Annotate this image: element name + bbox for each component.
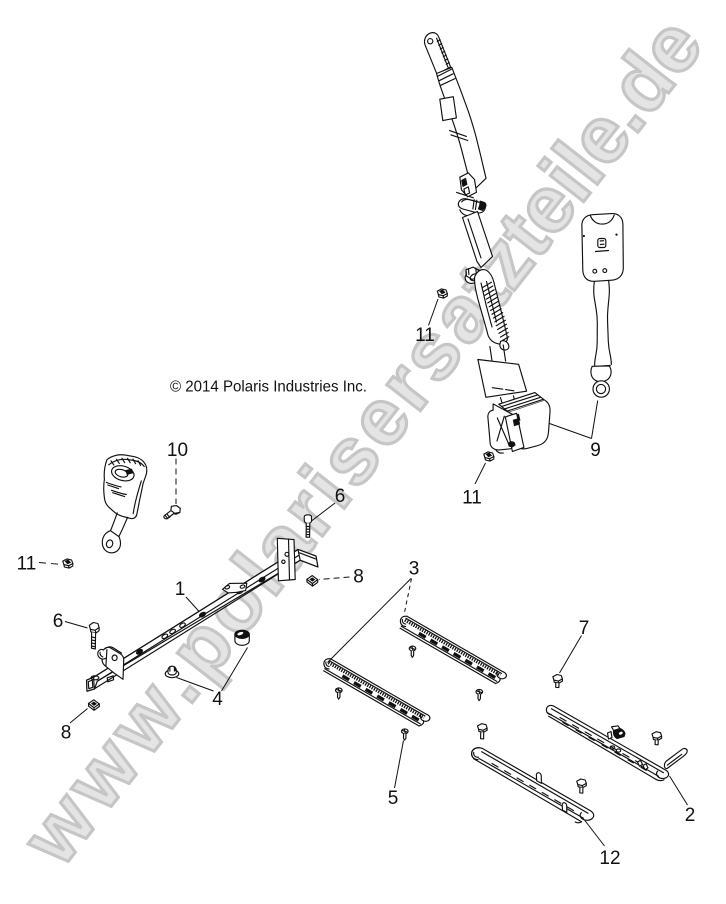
svg-text:5: 5 [388,788,399,809]
svg-text:6: 6 [335,486,346,507]
svg-text:12: 12 [599,848,620,869]
svg-text:8: 8 [353,567,364,588]
svg-text:8: 8 [61,723,72,744]
svg-text:11: 11 [17,554,37,575]
svg-text:3: 3 [409,559,420,580]
svg-text:© 2014 Polaris Industries Inc.: © 2014 Polaris Industries Inc. [170,379,367,396]
svg-text:11: 11 [462,488,482,509]
svg-text:2: 2 [685,805,696,826]
svg-text:4: 4 [212,689,223,710]
svg-text:1: 1 [175,579,186,600]
svg-text:9: 9 [590,440,601,461]
svg-text:11: 11 [415,325,435,346]
svg-text:10: 10 [167,440,188,461]
svg-text:6: 6 [53,611,64,632]
svg-text:7: 7 [579,618,590,639]
